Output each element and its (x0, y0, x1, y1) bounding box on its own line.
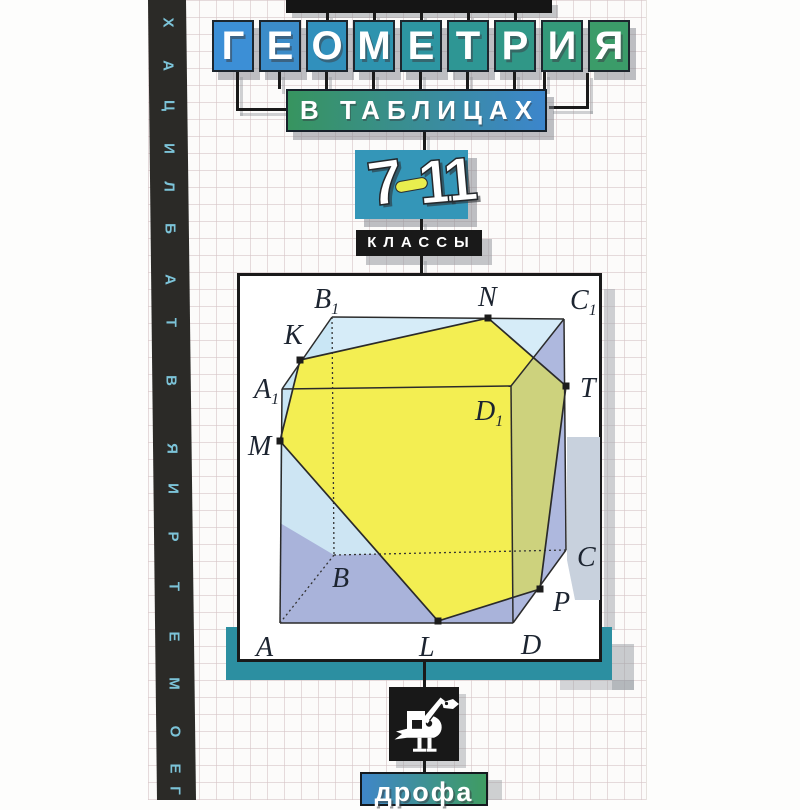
svg-text:C: C (577, 542, 596, 573)
svg-text:D: D (520, 630, 541, 661)
svg-text:T: T (580, 373, 598, 404)
svg-text:M: M (247, 431, 273, 462)
svg-text:N: N (477, 282, 498, 313)
svg-text:B: B (332, 563, 349, 594)
svg-text:A: A (254, 632, 274, 663)
svg-text:P: P (552, 587, 570, 618)
svg-text:L: L (418, 632, 435, 663)
svg-text:K: K (283, 320, 304, 351)
